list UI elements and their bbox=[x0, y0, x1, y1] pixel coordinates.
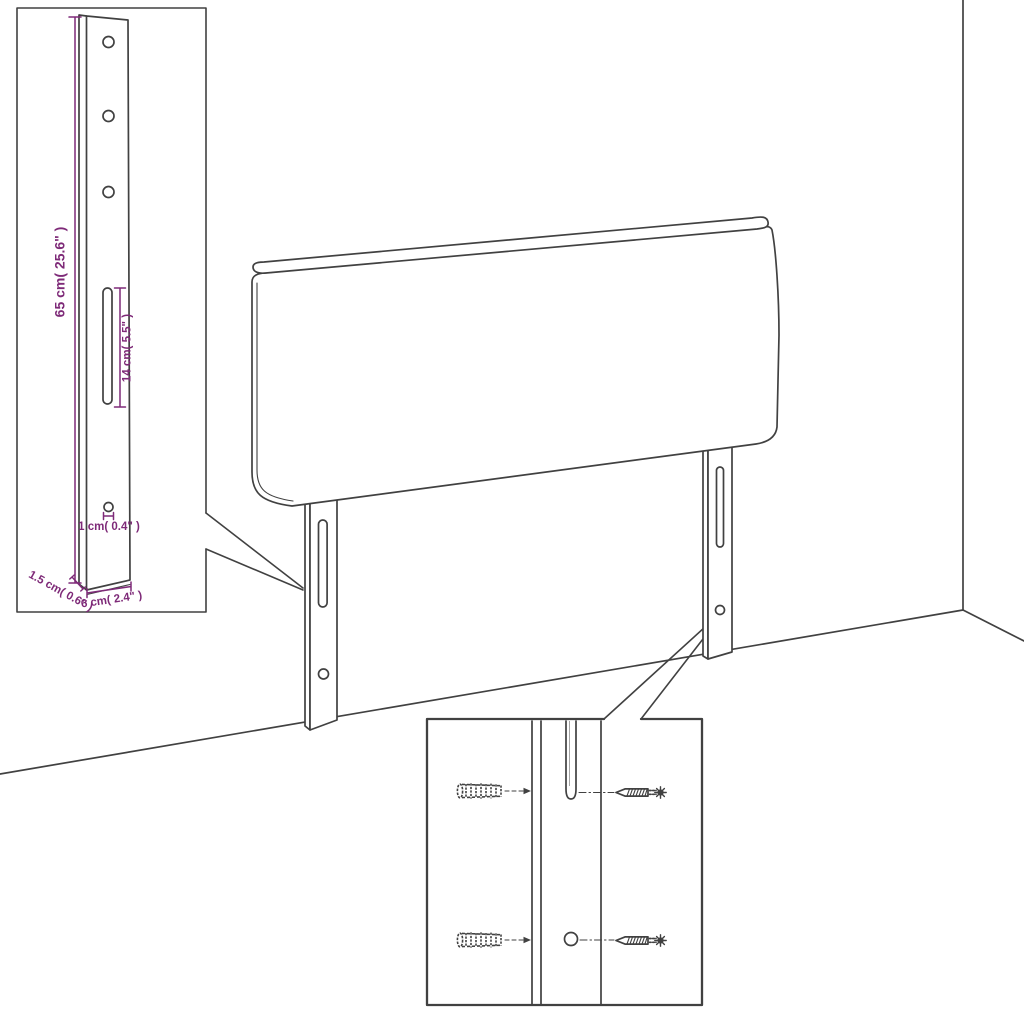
mounting-inset-border bbox=[427, 719, 702, 1005]
plug-arrowhead-icon bbox=[524, 788, 532, 794]
floor-line-left bbox=[0, 610, 963, 774]
headboard bbox=[252, 217, 779, 506]
bracket-strip-side-edges bbox=[532, 721, 541, 1004]
mounting-row-slot bbox=[457, 783, 666, 798]
dim-hole-label: 1 cm( 0.4" ) bbox=[78, 521, 140, 533]
dimension-height: 65 cm( 25.6" ) bbox=[52, 17, 81, 583]
wall-plug-icon bbox=[457, 783, 502, 798]
mounting-slot bbox=[566, 721, 576, 799]
dim-height-label: 65 cm( 25.6" ) bbox=[52, 227, 68, 318]
assembly-diagram: 65 cm( 25.6" ) 14 cm( 5.5" ) 1 cm( 0.4" … bbox=[0, 0, 1024, 1024]
headboard-panel bbox=[252, 227, 779, 506]
diagram-canvas: 65 cm( 25.6" ) 14 cm( 5.5" ) 1 cm( 0.4" … bbox=[0, 0, 1024, 1024]
dim-slot-label: 14 cm( 5.5" ) bbox=[122, 314, 134, 382]
headboard-leg-left bbox=[305, 489, 337, 730]
headboard-leg-right bbox=[703, 439, 732, 659]
callout-wedge-left bbox=[206, 513, 303, 590]
screw-icon bbox=[616, 787, 666, 798]
screw-icon bbox=[616, 935, 666, 946]
leg-left-front-face bbox=[310, 489, 337, 730]
mounting-row-hole bbox=[457, 932, 666, 947]
wall-plug-icon bbox=[457, 932, 502, 947]
floor-line-right bbox=[963, 610, 1024, 641]
leg-right-front-face bbox=[708, 439, 732, 659]
mounting-hole bbox=[565, 933, 578, 946]
plug-arrowhead-icon bbox=[524, 937, 532, 943]
bracket-detail-inset: 65 cm( 25.6" ) 14 cm( 5.5" ) 1 cm( 0.4" … bbox=[17, 8, 206, 614]
mounting-detail-inset bbox=[427, 719, 702, 1005]
